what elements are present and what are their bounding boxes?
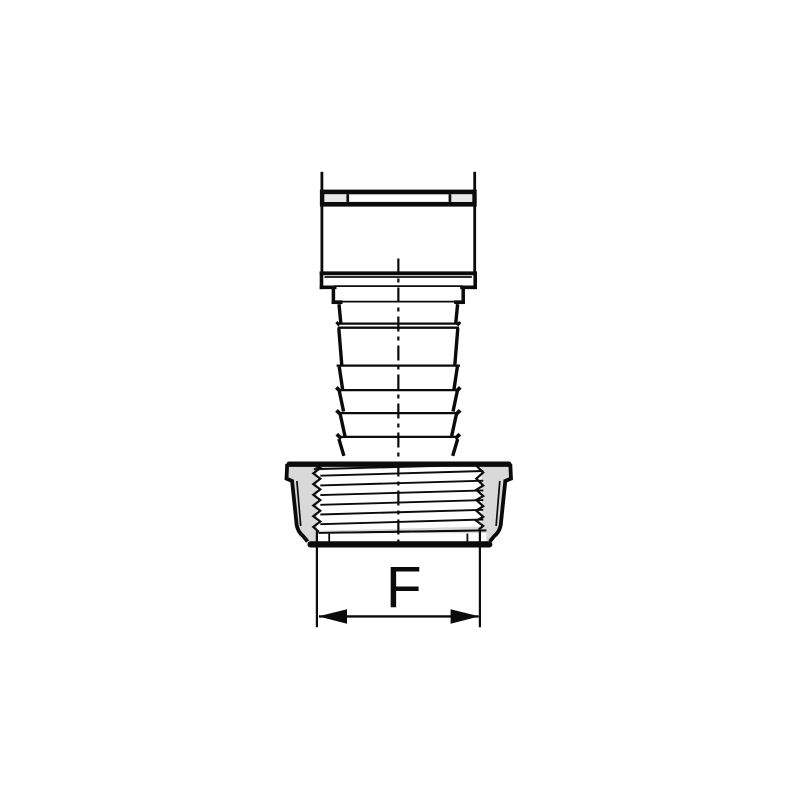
svg-text:F: F	[386, 556, 422, 621]
